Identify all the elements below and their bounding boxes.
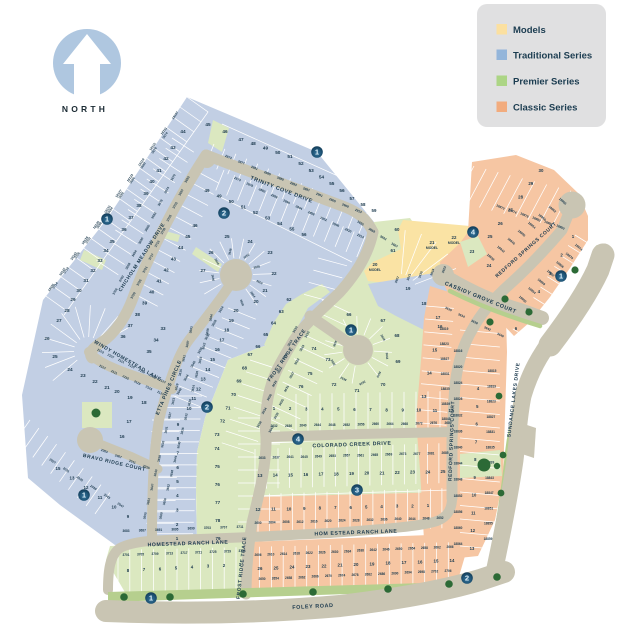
svg-text:3644: 3644	[385, 352, 390, 359]
svg-text:Traditional Series: Traditional Series	[513, 51, 592, 62]
svg-text:2612: 2612	[296, 520, 303, 524]
svg-text:3725: 3725	[209, 550, 216, 554]
svg-text:10: 10	[416, 408, 421, 413]
svg-text:2676: 2676	[430, 421, 437, 425]
svg-text:2670: 2670	[325, 574, 332, 578]
svg-text:44: 44	[180, 129, 186, 134]
svg-text:16: 16	[303, 472, 308, 477]
svg-text:22: 22	[395, 470, 400, 475]
svg-text:74: 74	[312, 346, 317, 351]
svg-text:18827: 18827	[440, 357, 449, 361]
svg-text:67: 67	[381, 318, 386, 323]
svg-text:2628: 2628	[352, 518, 359, 522]
svg-text:11: 11	[471, 510, 476, 515]
svg-text:66: 66	[256, 344, 261, 349]
svg-text:MODEL: MODEL	[426, 246, 438, 250]
svg-text:26: 26	[44, 336, 50, 341]
svg-text:73: 73	[326, 357, 331, 362]
svg-text:2690: 2690	[391, 571, 398, 575]
svg-text:2674: 2674	[338, 574, 345, 578]
svg-text:2646: 2646	[382, 548, 389, 552]
svg-text:16: 16	[438, 324, 443, 329]
svg-text:2654: 2654	[272, 576, 279, 580]
svg-text:23: 23	[306, 564, 311, 569]
svg-text:19: 19	[406, 286, 411, 291]
svg-text:13: 13	[201, 377, 207, 382]
svg-text:47: 47	[238, 137, 244, 142]
svg-text:25: 25	[441, 469, 446, 474]
svg-text:44: 44	[178, 245, 184, 250]
svg-text:2668: 2668	[401, 422, 408, 426]
svg-text:3699: 3699	[188, 527, 195, 531]
svg-text:3721: 3721	[195, 551, 202, 555]
svg-text:2702: 2702	[431, 570, 438, 574]
svg-text:2638: 2638	[357, 549, 364, 553]
svg-text:3711: 3711	[237, 525, 244, 529]
svg-text:2648: 2648	[422, 516, 429, 520]
svg-text:3713: 3713	[166, 552, 173, 556]
svg-text:2614: 2614	[280, 552, 287, 556]
svg-text:2698: 2698	[418, 570, 425, 574]
svg-text:18: 18	[422, 301, 427, 306]
svg-text:37: 37	[128, 215, 134, 220]
svg-text:49: 49	[263, 146, 269, 151]
svg-text:39: 39	[142, 301, 148, 306]
svg-text:40: 40	[149, 290, 155, 295]
svg-text:19: 19	[370, 561, 375, 566]
svg-text:2662: 2662	[434, 546, 441, 550]
svg-text:54: 54	[277, 221, 283, 226]
svg-text:2706: 2706	[444, 569, 451, 573]
svg-text:2636: 2636	[380, 518, 387, 522]
svg-text:21: 21	[104, 385, 110, 390]
svg-text:2673: 2673	[399, 452, 406, 456]
svg-text:18848: 18848	[454, 478, 463, 482]
svg-text:3701: 3701	[122, 553, 129, 557]
svg-text:2610: 2610	[267, 553, 274, 557]
svg-text:12: 12	[196, 386, 202, 391]
svg-text:MODEL: MODEL	[448, 241, 460, 245]
svg-text:37: 37	[128, 323, 134, 328]
svg-text:71: 71	[225, 405, 231, 410]
svg-text:2678: 2678	[351, 573, 358, 577]
svg-text:2669: 2669	[385, 453, 392, 457]
svg-text:3717: 3717	[180, 551, 187, 555]
svg-text:38: 38	[135, 312, 141, 317]
svg-text:15: 15	[434, 559, 439, 564]
svg-text:33: 33	[160, 326, 166, 331]
svg-text:2650: 2650	[395, 547, 402, 551]
svg-text:11: 11	[271, 507, 276, 512]
svg-text:18847: 18847	[485, 491, 494, 495]
svg-text:2: 2	[465, 574, 469, 583]
svg-text:2660: 2660	[372, 422, 379, 426]
svg-text:48: 48	[251, 141, 257, 146]
svg-text:24: 24	[67, 367, 73, 372]
svg-text:42: 42	[164, 267, 170, 272]
svg-text:76: 76	[299, 384, 304, 389]
svg-text:3705: 3705	[137, 553, 144, 557]
svg-text:59: 59	[372, 208, 377, 213]
svg-text:23: 23	[410, 470, 415, 475]
svg-text:31: 31	[83, 278, 89, 283]
svg-text:75: 75	[215, 464, 221, 469]
svg-text:18831: 18831	[441, 372, 450, 376]
svg-text:46: 46	[192, 223, 198, 228]
svg-text:45: 45	[205, 122, 211, 127]
svg-text:61: 61	[391, 248, 396, 253]
svg-text:68: 68	[395, 333, 400, 338]
svg-text:74: 74	[214, 446, 220, 451]
svg-text:20: 20	[233, 308, 239, 313]
svg-text:38: 38	[136, 203, 142, 208]
svg-text:2630: 2630	[331, 550, 338, 554]
svg-text:2644: 2644	[408, 517, 415, 521]
svg-text:18835: 18835	[486, 445, 495, 449]
svg-text:14: 14	[427, 371, 432, 376]
svg-text:2686: 2686	[378, 572, 385, 576]
svg-text:75: 75	[308, 371, 313, 376]
svg-text:24: 24	[290, 565, 295, 570]
svg-text:20: 20	[364, 471, 369, 476]
svg-text:45: 45	[185, 234, 191, 239]
svg-text:56: 56	[301, 232, 307, 237]
svg-text:18815: 18815	[488, 369, 497, 373]
svg-text:17: 17	[319, 472, 324, 477]
svg-text:3695: 3695	[171, 527, 178, 531]
svg-text:2648: 2648	[328, 423, 335, 427]
svg-text:18843: 18843	[485, 476, 494, 480]
svg-text:52: 52	[298, 161, 304, 166]
svg-text:18827: 18827	[486, 415, 495, 419]
svg-text:27: 27	[200, 268, 206, 273]
svg-text:3691: 3691	[155, 528, 162, 532]
svg-text:21: 21	[430, 240, 435, 245]
svg-text:55: 55	[329, 181, 335, 186]
svg-text:26: 26	[498, 221, 503, 226]
svg-text:22: 22	[271, 271, 277, 276]
svg-text:2658: 2658	[285, 576, 292, 580]
svg-text:34: 34	[103, 248, 109, 253]
svg-text:62: 62	[287, 297, 292, 302]
svg-text:13: 13	[70, 476, 75, 481]
svg-text:24: 24	[247, 239, 253, 244]
svg-text:26: 26	[208, 250, 214, 255]
svg-text:54: 54	[319, 175, 325, 180]
svg-text:Premier Series: Premier Series	[513, 77, 580, 88]
svg-text:2681: 2681	[427, 451, 434, 455]
svg-text:29: 29	[70, 297, 76, 302]
svg-text:12: 12	[256, 507, 261, 512]
svg-text:14: 14	[450, 558, 455, 563]
svg-text:18: 18	[224, 328, 230, 333]
svg-text:2626: 2626	[318, 550, 325, 554]
svg-text:3687: 3687	[139, 528, 146, 532]
svg-text:2649: 2649	[315, 455, 322, 459]
svg-text:2661: 2661	[357, 453, 364, 457]
svg-text:42: 42	[163, 156, 169, 161]
svg-text:51: 51	[287, 154, 293, 159]
svg-text:64: 64	[271, 321, 276, 326]
svg-text:2641: 2641	[287, 455, 294, 459]
svg-text:49: 49	[217, 194, 223, 199]
svg-text:2616: 2616	[310, 520, 317, 524]
svg-text:43: 43	[170, 145, 176, 150]
svg-text:11: 11	[191, 396, 196, 401]
svg-text:2650: 2650	[258, 577, 265, 581]
svg-text:11: 11	[433, 408, 438, 413]
svg-text:2636: 2636	[285, 424, 292, 428]
svg-text:19: 19	[127, 395, 133, 400]
svg-text:20: 20	[354, 562, 359, 567]
svg-text:70: 70	[231, 392, 237, 397]
svg-text:10: 10	[286, 506, 291, 511]
svg-text:3709: 3709	[151, 552, 158, 556]
svg-text:67: 67	[247, 352, 253, 357]
svg-text:25: 25	[52, 354, 58, 359]
svg-text:3683: 3683	[122, 529, 129, 533]
svg-text:63: 63	[279, 309, 284, 314]
svg-text:22: 22	[322, 563, 327, 568]
svg-text:73: 73	[214, 432, 220, 437]
svg-text:50: 50	[229, 199, 235, 204]
svg-text:13: 13	[258, 473, 263, 478]
svg-text:21: 21	[338, 563, 343, 568]
svg-text:Models: Models	[513, 25, 546, 36]
svg-text:2606: 2606	[254, 553, 261, 557]
svg-text:57: 57	[350, 196, 355, 201]
svg-text:39: 39	[143, 191, 149, 196]
svg-text:66: 66	[347, 312, 352, 317]
svg-text:2657: 2657	[343, 454, 350, 458]
svg-text:19: 19	[229, 318, 235, 323]
svg-text:2645: 2645	[301, 455, 308, 459]
svg-text:2652: 2652	[436, 516, 443, 520]
svg-text:17: 17	[219, 337, 225, 342]
svg-text:49: 49	[204, 188, 210, 193]
svg-text:2637: 2637	[273, 456, 280, 460]
svg-text:50: 50	[275, 150, 281, 155]
svg-text:78: 78	[215, 518, 221, 523]
svg-text:72: 72	[332, 382, 337, 387]
svg-text:10: 10	[472, 493, 477, 498]
svg-text:60: 60	[395, 227, 400, 232]
svg-text:Classic Series: Classic Series	[513, 103, 577, 114]
svg-text:71: 71	[355, 388, 360, 393]
svg-text:18824: 18824	[454, 381, 463, 385]
svg-text:20: 20	[114, 389, 120, 394]
svg-text:3: 3	[355, 486, 359, 495]
svg-text:2672: 2672	[415, 422, 422, 426]
svg-text:29: 29	[528, 181, 533, 186]
svg-text:2652: 2652	[343, 423, 350, 427]
svg-text:2604: 2604	[268, 521, 275, 525]
svg-text:55: 55	[289, 227, 295, 232]
svg-text:58: 58	[361, 202, 366, 207]
svg-text:18839: 18839	[441, 402, 450, 406]
svg-text:MODEL: MODEL	[369, 268, 381, 272]
svg-text:2665: 2665	[371, 453, 378, 457]
svg-text:18823: 18823	[487, 400, 496, 404]
svg-text:18852: 18852	[454, 494, 463, 498]
svg-text:14: 14	[205, 367, 211, 372]
svg-text:18844: 18844	[454, 462, 463, 466]
svg-text:2664: 2664	[386, 422, 393, 426]
svg-text:3729: 3729	[224, 550, 231, 554]
svg-text:2658: 2658	[421, 546, 428, 550]
svg-text:15: 15	[288, 472, 293, 477]
svg-text:2633: 2633	[258, 456, 265, 460]
svg-text:69: 69	[236, 379, 242, 384]
svg-text:53: 53	[309, 168, 315, 173]
svg-text:12: 12	[470, 528, 475, 533]
svg-text:28: 28	[518, 194, 523, 199]
svg-text:2653: 2653	[329, 454, 336, 458]
svg-text:2677: 2677	[413, 452, 420, 456]
svg-text:20: 20	[253, 299, 259, 304]
svg-text:25: 25	[488, 234, 493, 239]
svg-text:2682: 2682	[365, 572, 372, 576]
svg-text:2618: 2618	[293, 551, 300, 555]
svg-text:15: 15	[56, 466, 61, 471]
svg-text:21: 21	[380, 470, 385, 475]
svg-text:17: 17	[436, 315, 441, 320]
svg-text:18855: 18855	[484, 522, 493, 526]
svg-text:53: 53	[265, 216, 271, 221]
svg-text:25: 25	[224, 234, 230, 239]
svg-text:18859: 18859	[484, 537, 493, 541]
svg-text:20: 20	[373, 262, 378, 267]
svg-text:15: 15	[210, 357, 216, 362]
svg-text:77: 77	[215, 500, 221, 505]
svg-text:28: 28	[64, 308, 70, 313]
svg-text:2656: 2656	[357, 423, 364, 427]
svg-text:41: 41	[156, 279, 162, 284]
svg-text:10: 10	[112, 504, 117, 509]
svg-text:18851: 18851	[484, 507, 493, 511]
svg-text:2: 2	[222, 209, 226, 218]
svg-text:34: 34	[153, 338, 159, 343]
svg-text:52: 52	[253, 210, 259, 215]
svg-text:2666: 2666	[312, 575, 319, 579]
svg-text:18823: 18823	[440, 342, 449, 346]
svg-text:69: 69	[396, 359, 401, 364]
svg-text:18819: 18819	[487, 384, 496, 388]
svg-text:2654: 2654	[408, 547, 415, 551]
svg-text:10: 10	[186, 406, 192, 411]
svg-text:17: 17	[126, 419, 132, 424]
svg-text:65: 65	[263, 332, 268, 337]
svg-text:72: 72	[220, 419, 226, 424]
svg-text:26: 26	[258, 566, 263, 571]
svg-text:25: 25	[274, 565, 279, 570]
svg-text:NORTH: NORTH	[62, 104, 108, 114]
svg-text:13: 13	[422, 394, 427, 399]
svg-text:46: 46	[222, 129, 228, 134]
svg-text:18831: 18831	[486, 430, 495, 434]
svg-text:16: 16	[119, 434, 125, 439]
svg-text:18: 18	[386, 561, 391, 566]
svg-text:16: 16	[418, 559, 423, 564]
svg-text:2694: 2694	[405, 571, 412, 575]
svg-text:2634: 2634	[344, 549, 351, 553]
svg-text:14: 14	[273, 473, 278, 478]
svg-text:36: 36	[120, 334, 126, 339]
svg-text:41: 41	[156, 168, 162, 173]
svg-text:19: 19	[349, 471, 354, 476]
svg-text:2640: 2640	[394, 517, 401, 521]
svg-text:18: 18	[141, 400, 147, 405]
svg-text:35: 35	[109, 239, 115, 244]
svg-text:2620: 2620	[324, 519, 331, 523]
svg-text:2632: 2632	[270, 424, 277, 428]
svg-text:2632: 2632	[366, 518, 373, 522]
svg-text:23: 23	[80, 373, 86, 378]
svg-text:70: 70	[381, 382, 386, 387]
svg-text:24: 24	[487, 263, 492, 268]
svg-text:18835: 18835	[441, 387, 450, 391]
svg-text:2622: 2622	[306, 551, 313, 555]
svg-text:23: 23	[470, 249, 475, 254]
svg-text:11: 11	[98, 495, 103, 500]
svg-text:18: 18	[334, 471, 339, 476]
svg-text:2644: 2644	[314, 423, 321, 427]
svg-text:22: 22	[452, 235, 457, 240]
svg-text:43: 43	[171, 256, 177, 261]
svg-text:2600: 2600	[254, 521, 261, 525]
svg-text:76: 76	[215, 482, 221, 487]
svg-text:18820: 18820	[454, 365, 463, 369]
svg-text:18860: 18860	[454, 526, 463, 530]
svg-text:18864: 18864	[454, 542, 463, 546]
svg-text:18828: 18828	[454, 397, 463, 401]
svg-text:27: 27	[56, 318, 62, 323]
svg-text:21: 21	[262, 288, 268, 293]
svg-text:27: 27	[508, 208, 513, 213]
svg-text:23: 23	[267, 250, 273, 255]
svg-text:35: 35	[146, 349, 152, 354]
svg-text:2: 2	[205, 403, 209, 412]
svg-text:30: 30	[539, 168, 544, 173]
svg-text:56: 56	[339, 188, 345, 193]
svg-text:16: 16	[215, 347, 221, 352]
svg-text:32: 32	[90, 268, 96, 273]
svg-text:2608: 2608	[282, 520, 289, 524]
svg-text:18840: 18840	[454, 446, 463, 450]
svg-text:18816: 18816	[454, 349, 463, 353]
svg-text:36: 36	[121, 227, 127, 232]
svg-text:3707: 3707	[220, 526, 227, 530]
svg-text:30: 30	[76, 288, 82, 293]
svg-text:33: 33	[97, 258, 103, 263]
svg-text:22: 22	[92, 379, 98, 384]
svg-text:51: 51	[241, 205, 247, 210]
svg-text:68: 68	[242, 365, 248, 370]
svg-text:2662: 2662	[298, 575, 305, 579]
svg-text:2640: 2640	[299, 424, 306, 428]
svg-text:3703: 3703	[204, 526, 211, 530]
svg-text:2624: 2624	[338, 519, 345, 523]
svg-text:17: 17	[402, 560, 407, 565]
svg-text:15: 15	[432, 347, 437, 352]
svg-text:18856: 18856	[454, 510, 463, 514]
svg-text:13: 13	[470, 546, 475, 551]
svg-text:40: 40	[149, 179, 155, 184]
svg-text:2642: 2642	[370, 548, 377, 552]
svg-text:24: 24	[425, 469, 430, 474]
